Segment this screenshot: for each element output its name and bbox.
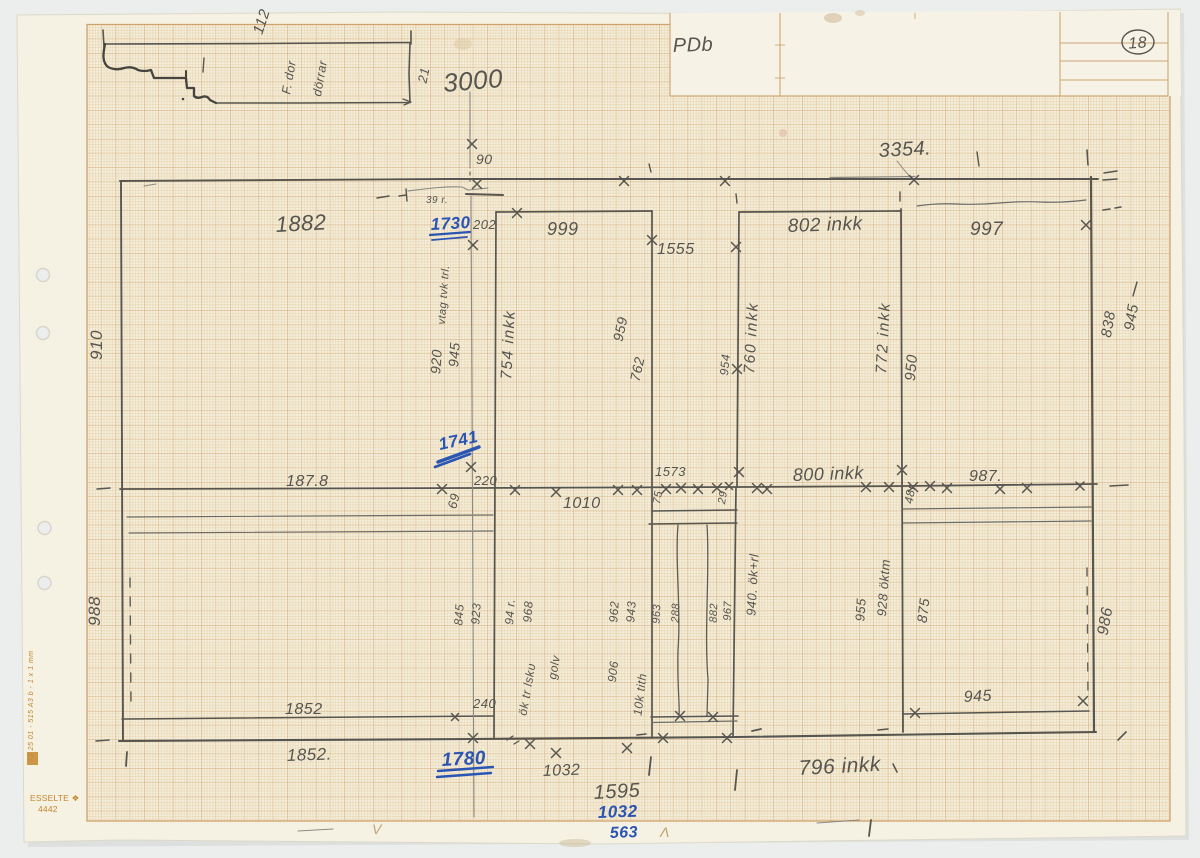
svg-text:906: 906: [605, 660, 622, 683]
svg-text:800 inkk: 800 inkk: [792, 463, 864, 485]
svg-text:910: 910: [87, 330, 106, 360]
svg-text:963: 963: [651, 603, 664, 624]
svg-text:967: 967: [722, 600, 735, 621]
svg-text:997: 997: [970, 219, 1004, 240]
svg-text:V: V: [372, 821, 383, 837]
svg-text:73 25 01 - 515 A3 b - 1 x 1 mm: 73 25 01 - 515 A3 b - 1 x 1 mm: [28, 650, 35, 761]
svg-text:945: 945: [963, 688, 992, 706]
svg-text:882: 882: [708, 603, 721, 623]
svg-text:90: 90: [476, 151, 493, 167]
svg-text:187.8: 187.8: [286, 473, 329, 490]
svg-text:1730: 1730: [430, 213, 471, 234]
svg-text:945: 945: [445, 342, 463, 368]
svg-text:202: 202: [472, 217, 496, 232]
svg-text:950: 950: [902, 353, 921, 381]
svg-text:968: 968: [520, 600, 535, 622]
svg-text:ESSELTE ❖: ESSELTE ❖: [30, 793, 80, 803]
svg-text:39 r.: 39 r.: [426, 195, 448, 206]
svg-text:29: 29: [716, 490, 730, 506]
svg-text:94 r.: 94 r.: [502, 598, 518, 625]
svg-text:796 inkk: 796 inkk: [798, 753, 882, 780]
svg-text:240: 240: [472, 696, 496, 711]
svg-text:1555: 1555: [657, 241, 695, 258]
svg-text:75: 75: [651, 490, 665, 505]
svg-text:1032: 1032: [597, 802, 638, 822]
svg-text:923: 923: [468, 602, 483, 624]
svg-text:563: 563: [610, 824, 639, 842]
svg-text:18: 18: [1128, 34, 1148, 52]
svg-text:1852.: 1852.: [286, 744, 332, 765]
svg-text:962: 962: [606, 600, 621, 622]
svg-text:943: 943: [623, 600, 638, 622]
svg-text:288: 288: [670, 602, 683, 624]
svg-text:988: 988: [85, 596, 104, 626]
svg-text:954: 954: [717, 353, 733, 376]
svg-text:987.: 987.: [969, 468, 1002, 485]
svg-text:1852: 1852: [285, 701, 323, 718]
svg-text:Λ: Λ: [659, 824, 670, 840]
svg-text:955: 955: [852, 597, 869, 621]
svg-text:1032: 1032: [543, 762, 581, 780]
svg-text:1882: 1882: [275, 209, 327, 237]
svg-text:220: 220: [473, 473, 497, 488]
svg-text:845: 845: [451, 603, 466, 625]
svg-text:1010: 1010: [563, 495, 601, 512]
svg-text:999: 999: [547, 219, 579, 239]
svg-text:1573: 1573: [655, 464, 686, 479]
svg-text:3354.: 3354.: [878, 137, 932, 162]
svg-text:875: 875: [914, 597, 933, 624]
svg-text:920: 920: [427, 349, 445, 375]
svg-text:4442: 4442: [38, 804, 58, 814]
svg-text:PDb: PDb: [672, 34, 713, 57]
svg-text:802 inkk: 802 inkk: [787, 213, 863, 237]
svg-text:3000: 3000: [442, 63, 504, 98]
svg-text:1595: 1595: [593, 780, 641, 804]
